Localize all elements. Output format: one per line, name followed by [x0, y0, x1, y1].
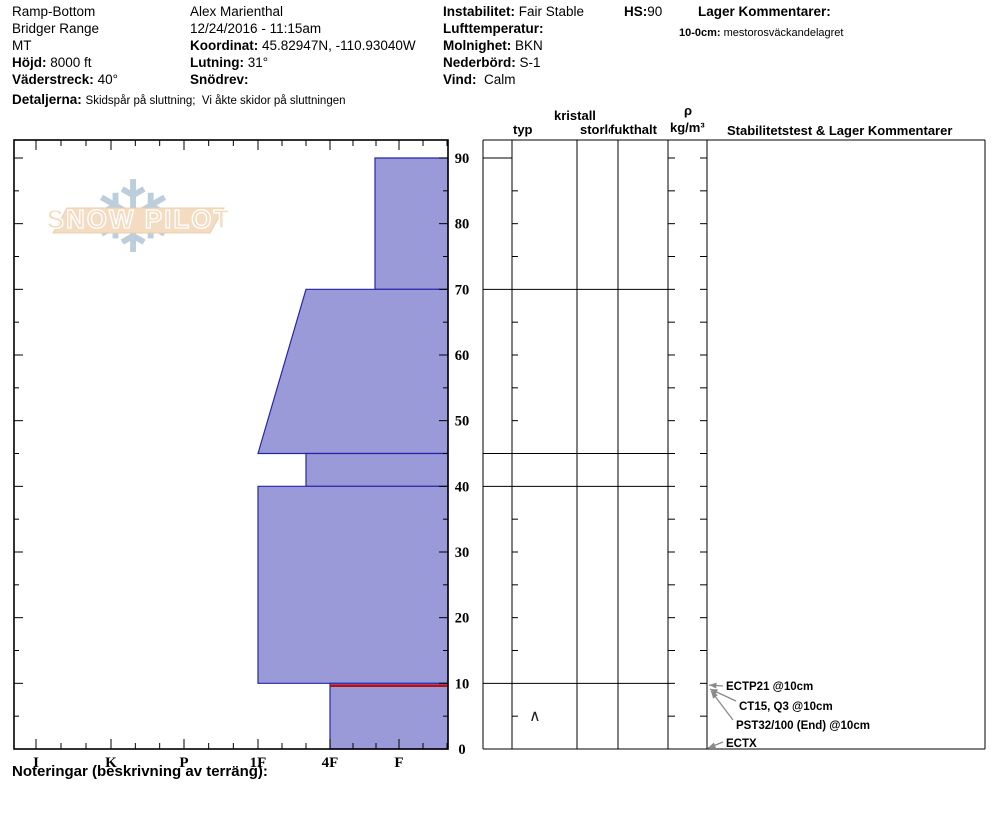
stability-test-annotation: PST32/100 (End) @10cm — [736, 720, 870, 732]
hardness-axis-label: I — [33, 755, 39, 771]
depth-axis-label: 70 — [455, 282, 470, 298]
depth-axis-label: 80 — [455, 217, 470, 233]
stability-test-annotation: CT15, Q3 @10cm — [739, 701, 833, 713]
hardness-axis-label: K — [105, 755, 117, 771]
snow-profile-plot: ❄SNOW PILOT∧0102030405060708090IKP1F4FFE… — [0, 0, 994, 840]
depth-axis-label: 20 — [455, 611, 470, 627]
depth-axis-label: 30 — [455, 545, 470, 561]
hardness-axis-label: 4F — [322, 755, 339, 771]
logo-text: SNOW PILOT — [47, 204, 232, 234]
annotation-arrowhead — [708, 742, 716, 748]
depth-axis-label: 60 — [455, 348, 470, 364]
snow-layer — [375, 158, 448, 289]
hardness-axis-label: 1F — [250, 755, 267, 771]
depth-axis-label: 10 — [455, 676, 470, 692]
snow-layer — [258, 486, 448, 683]
annotation-arrowhead — [709, 683, 717, 689]
stability-test-annotation: ECTP21 @10cm — [726, 681, 813, 693]
hardness-axis-label: F — [394, 755, 403, 771]
hardness-axis-label: P — [179, 755, 188, 771]
depth-axis-label: 0 — [458, 742, 465, 758]
snow-layer — [258, 289, 448, 453]
snow-layer — [306, 454, 448, 487]
depth-axis-label: 90 — [455, 151, 470, 167]
grain-type-symbol: ∧ — [529, 708, 541, 725]
depth-axis-label: 50 — [455, 414, 470, 430]
snowpilot-profile-page: Ramp-Bottom Bridger Range MT Höjd: 8000 … — [0, 0, 994, 840]
stability-test-annotation: ECTX — [726, 738, 757, 750]
depth-axis-label: 40 — [455, 479, 470, 495]
snow-layer — [330, 683, 448, 749]
